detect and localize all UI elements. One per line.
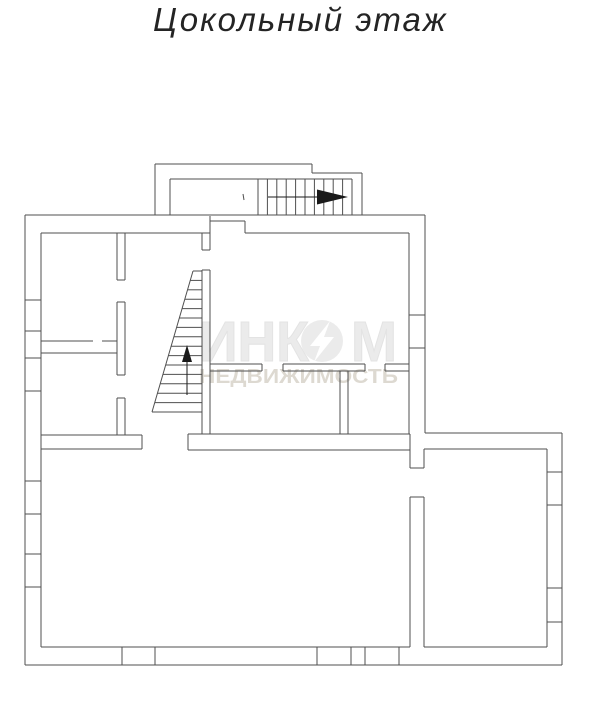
- group-interior_stair: [152, 271, 202, 412]
- group-vestibule: [155, 164, 362, 215]
- vestibule-line: [243, 194, 244, 200]
- stair-direction-arrowhead-icon: [182, 345, 192, 362]
- watermark-subtitle: НЕДВИЖИМОСТЬ: [199, 366, 398, 388]
- group-walls: [25, 215, 562, 665]
- floor-plan-svg: ИНК М НЕДВИЖИМОСТЬ: [0, 0, 600, 703]
- floor-plan: ИНК М НЕДВИЖИМОСТЬ: [0, 0, 600, 703]
- stair-direction-arrowhead-icon: [317, 190, 348, 205]
- watermark: ИНК М НЕДВИЖИМОСТЬ: [199, 310, 398, 388]
